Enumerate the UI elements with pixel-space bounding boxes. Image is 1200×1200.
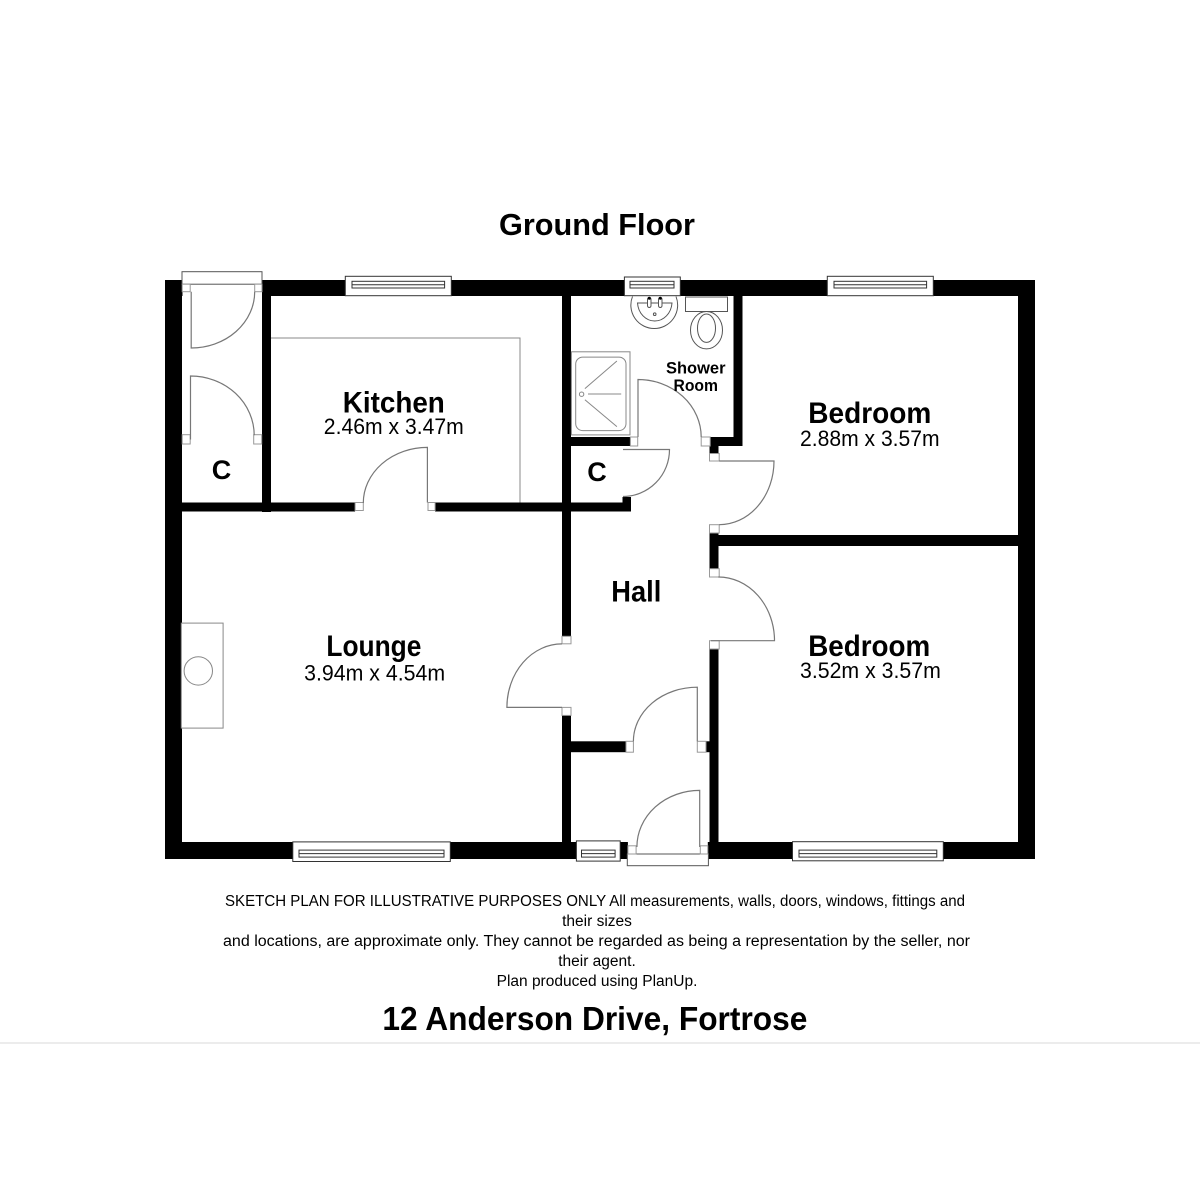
svg-text:2.46m x 3.47m: 2.46m x 3.47m: [324, 414, 464, 439]
svg-text:and locations, are approximate: and locations, are approximate only. The…: [223, 933, 970, 950]
svg-text:2.88m x 3.57m: 2.88m x 3.57m: [800, 426, 940, 451]
svg-text:3.94m x 4.54m: 3.94m x 4.54m: [304, 661, 445, 686]
svg-text:Hall: Hall: [611, 576, 661, 609]
svg-text:their agent.: their agent.: [558, 953, 636, 970]
svg-text:their sizes: their sizes: [562, 913, 632, 930]
svg-text:Plan produced using PlanUp.: Plan produced using PlanUp.: [497, 973, 698, 990]
svg-text:C: C: [587, 457, 607, 487]
svg-text:Ground Floor: Ground Floor: [499, 207, 695, 242]
svg-text:SKETCH PLAN FOR ILLUSTRATIVE P: SKETCH PLAN FOR ILLUSTRATIVE PURPOSES ON…: [225, 893, 965, 910]
svg-text:Shower: Shower: [666, 360, 726, 378]
svg-text:C: C: [212, 455, 232, 485]
svg-text:Lounge: Lounge: [326, 630, 421, 663]
svg-text:3.52m x 3.57m: 3.52m x 3.57m: [800, 658, 941, 683]
svg-text:12 Anderson Drive, Fortrose: 12 Anderson Drive, Fortrose: [382, 1000, 807, 1037]
svg-text:Room: Room: [674, 377, 719, 395]
